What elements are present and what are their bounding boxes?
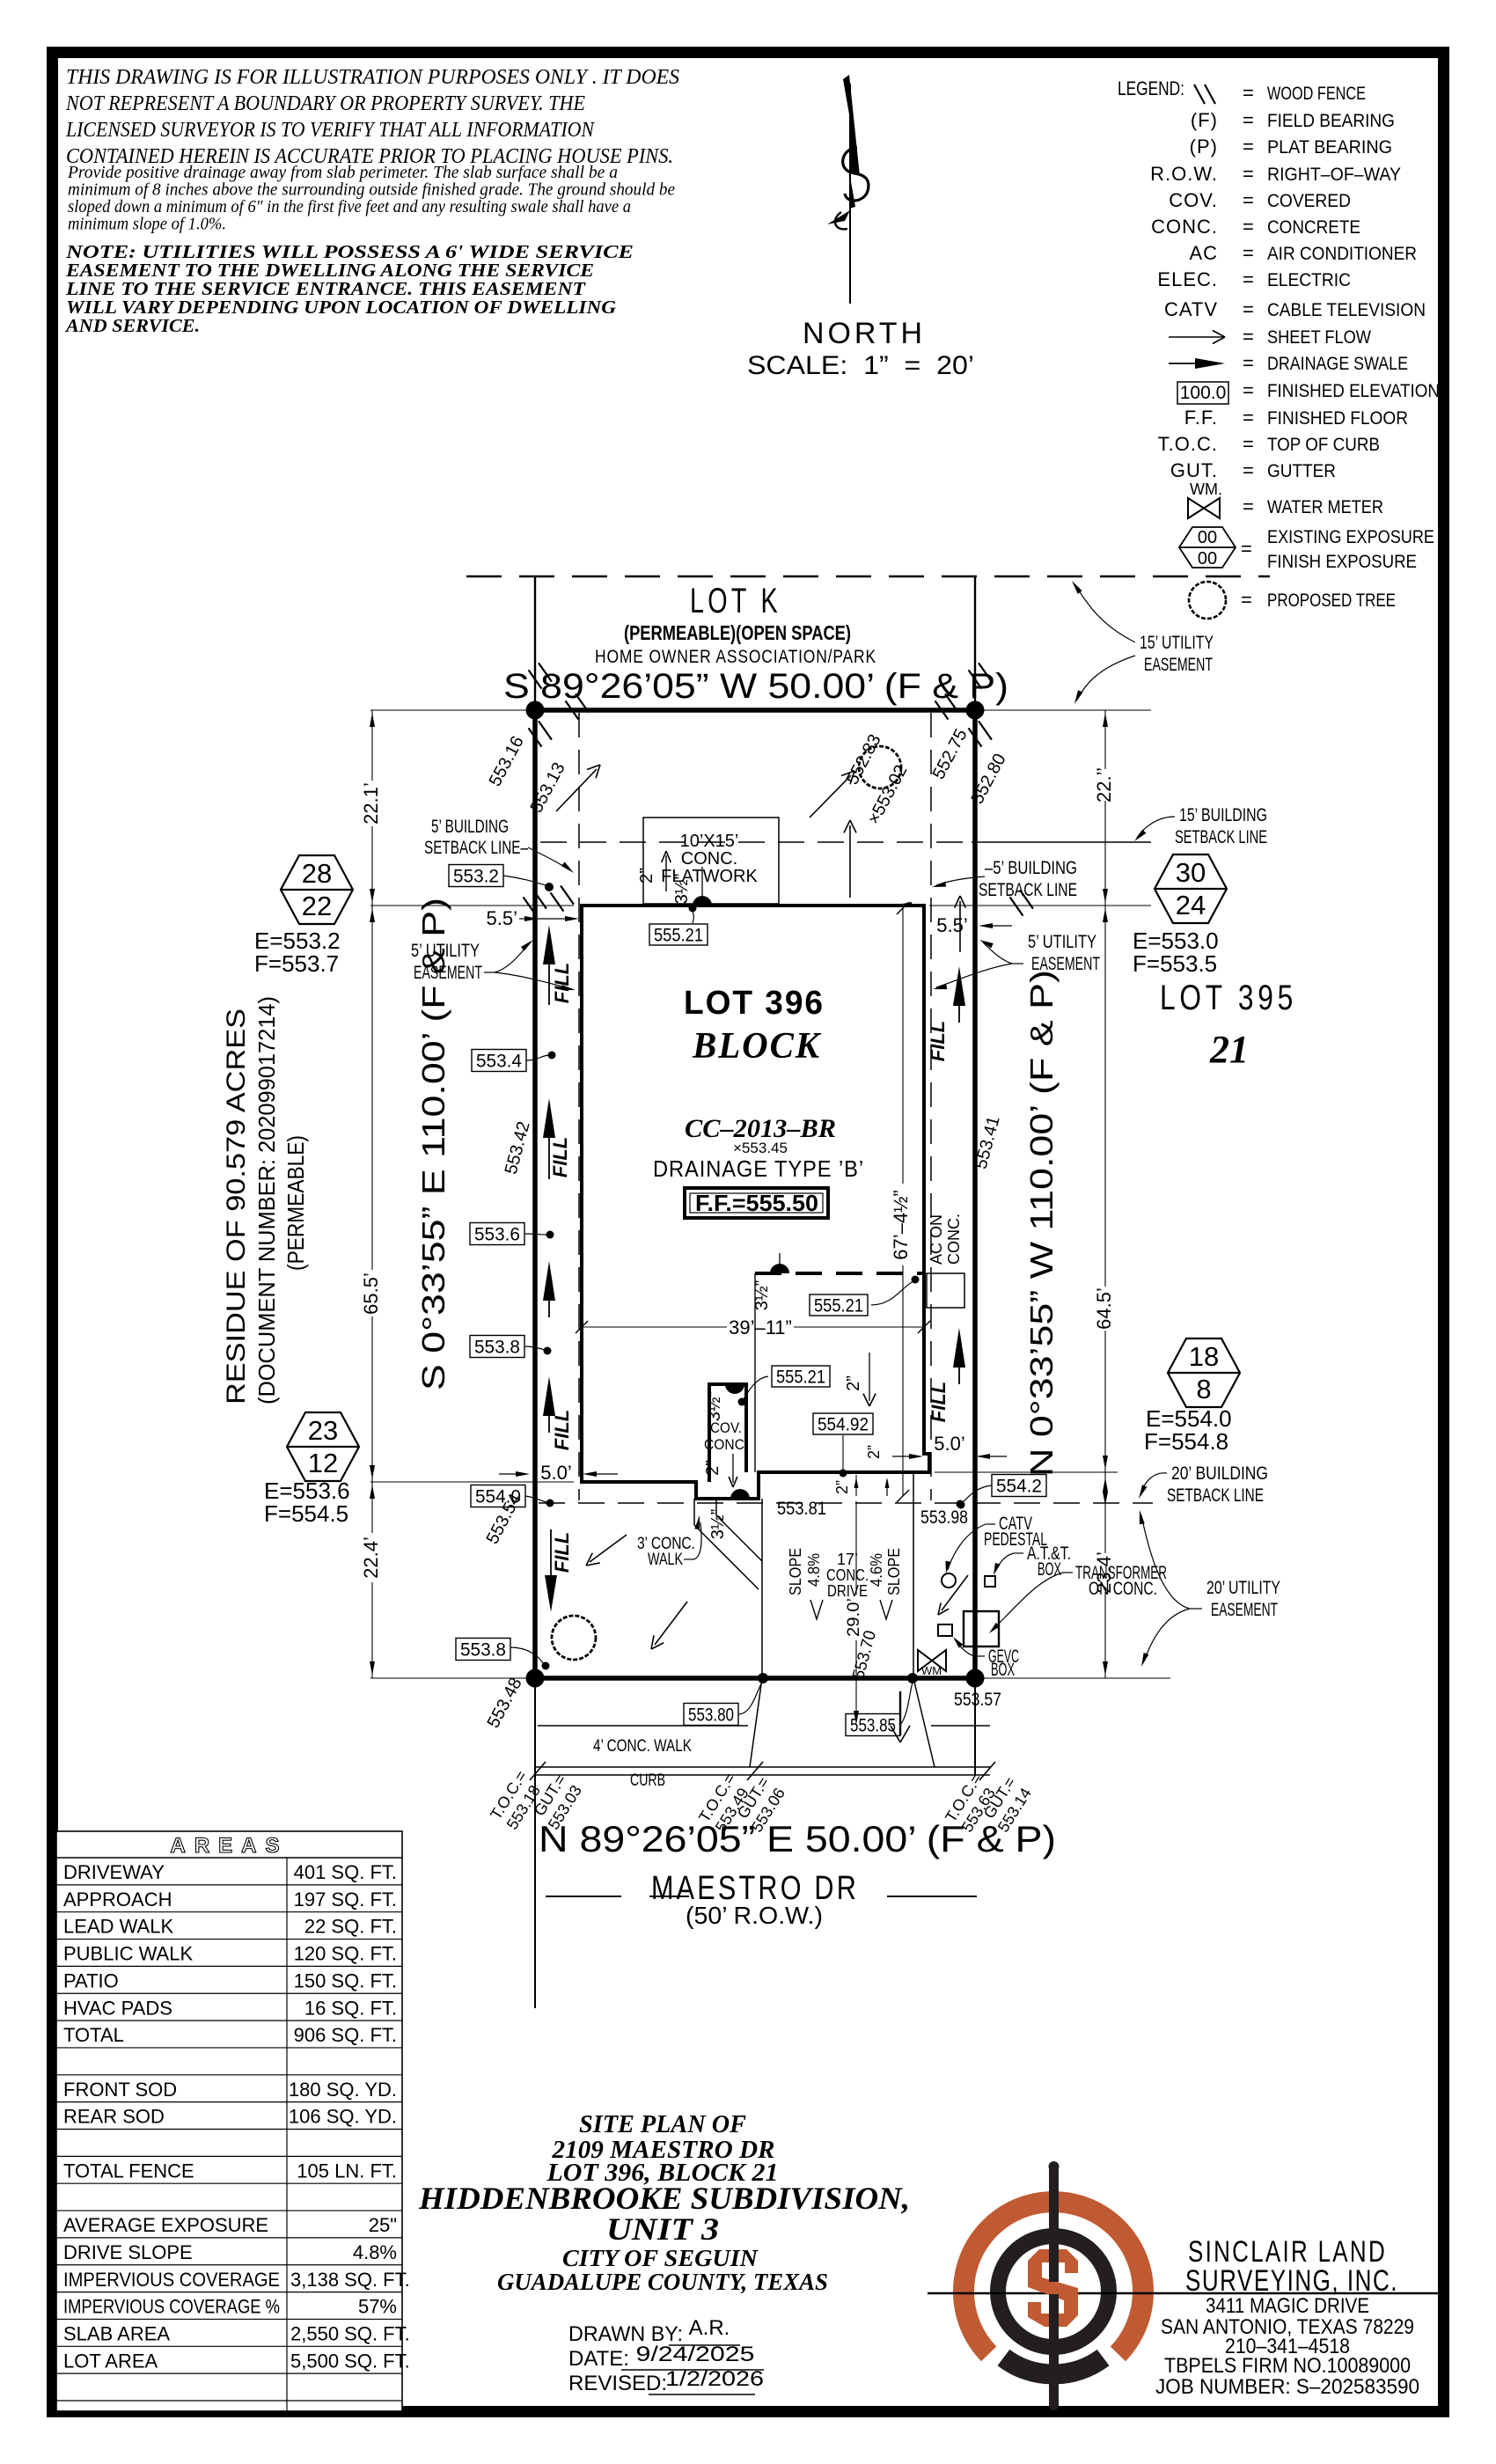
- svg-text:DRIVE: DRIVE: [827, 1582, 868, 1600]
- svg-text:=: =: [1243, 379, 1254, 401]
- svg-text:LOT AREA: LOT AREA: [63, 2350, 158, 2372]
- svg-text:GUT.: GUT.: [1170, 459, 1218, 481]
- svg-text:ELECTRIC: ELECTRIC: [1267, 270, 1351, 290]
- svg-text:F.F.=555.50: F.F.=555.50: [695, 1190, 818, 1216]
- svg-text:PUBLIC WALK: PUBLIC WALK: [63, 1943, 193, 1965]
- svg-text:120 SQ. FT.: 120 SQ. FT.: [294, 1943, 397, 1965]
- svg-text:CONC.: CONC.: [826, 1566, 869, 1584]
- svg-text:SLOPE: SLOPE: [885, 1548, 903, 1595]
- svg-text:TBPELS FIRM NO.10089000: TBPELS FIRM NO.10089000: [1164, 2354, 1411, 2378]
- svg-text:LOT 395: LOT 395: [1160, 979, 1297, 1017]
- svg-text:5.0’: 5.0’: [934, 1433, 964, 1455]
- svg-text:LICENSED SURVEYOR IS TO VERIFY: LICENSED SURVEYOR IS TO VERIFY THAT ALL …: [65, 119, 596, 142]
- svg-text:9/24/2025: 9/24/2025: [636, 2343, 755, 2366]
- svg-text:PATIO: PATIO: [63, 1969, 119, 1991]
- svg-text:=: =: [1243, 407, 1254, 429]
- svg-text:FIELD BEARING: FIELD BEARING: [1267, 111, 1395, 131]
- svg-text:EASEMENT: EASEMENT: [1031, 954, 1100, 974]
- svg-text:×553.02: ×553.02: [864, 762, 912, 828]
- svg-text:1/2/2026: 1/2/2026: [665, 2367, 764, 2391]
- svg-text:COV.: COV.: [1169, 189, 1218, 211]
- svg-text:–5’ BUILDING: –5’ BUILDING: [985, 858, 1077, 878]
- svg-text:=: =: [1243, 459, 1254, 481]
- svg-text:=: =: [1243, 189, 1254, 211]
- svg-text:A.R.: A.R.: [689, 2316, 730, 2340]
- svg-text:22 SQ. FT.: 22 SQ. FT.: [304, 1916, 397, 1938]
- svg-text:FINISHED ELEVATION: FINISHED ELEVATION: [1267, 381, 1440, 401]
- svg-text:REVISED:: REVISED:: [568, 2372, 667, 2395]
- svg-text:WOOD FENCE: WOOD FENCE: [1267, 84, 1366, 104]
- svg-text:2”: 2”: [637, 868, 656, 884]
- svg-text:CITY OF SEGUIN: CITY OF SEGUIN: [562, 2245, 759, 2271]
- svg-text:197 SQ. FT.: 197 SQ. FT.: [294, 1888, 397, 1910]
- svg-text:65.5’: 65.5’: [360, 1272, 382, 1315]
- svg-text:AND SERVICE.: AND SERVICE.: [64, 315, 200, 336]
- svg-text:ON CONC.: ON CONC.: [1089, 1579, 1157, 1599]
- svg-text:28: 28: [302, 858, 332, 889]
- svg-text:553.4: 553.4: [476, 1051, 522, 1071]
- svg-text:8: 8: [1196, 1374, 1211, 1404]
- svg-text:EASEMENT: EASEMENT: [414, 963, 482, 983]
- svg-text:BOX: BOX: [1038, 1559, 1061, 1580]
- svg-text:FILL: FILL: [551, 963, 573, 1003]
- svg-text:AC: AC: [1189, 242, 1218, 264]
- svg-text:ELEC.: ELEC.: [1157, 268, 1218, 290]
- svg-text:554.92: 554.92: [818, 1414, 869, 1434]
- svg-text:553.8: 553.8: [460, 1639, 506, 1660]
- svg-text:(50’ R.O.W.): (50’ R.O.W.): [686, 1902, 823, 1929]
- svg-text:RIGHT–OF–WAY: RIGHT–OF–WAY: [1267, 165, 1401, 185]
- svg-text:RESIDUE OF 90.579 ACRES: RESIDUE OF 90.579 ACRES: [222, 1008, 251, 1404]
- svg-text:5’ UTILITY: 5’ UTILITY: [1028, 932, 1096, 952]
- svg-text:22.’’: 22.’’: [1093, 767, 1115, 803]
- svg-text:CATV: CATV: [1164, 298, 1218, 320]
- svg-text:SURVEYING, INC.: SURVEYING, INC.: [1185, 2264, 1398, 2298]
- svg-text:TOP OF CURB: TOP OF CURB: [1267, 435, 1380, 455]
- svg-text:FILL: FILL: [927, 1021, 949, 1061]
- svg-text:553.42: 553.42: [502, 1119, 534, 1177]
- svg-text:WATER METER: WATER METER: [1267, 497, 1383, 517]
- svg-text:CONC.: CONC.: [1151, 216, 1218, 238]
- svg-text:180 SQ. YD.: 180 SQ. YD.: [289, 2079, 397, 2101]
- svg-text:3½”: 3½”: [705, 1391, 724, 1421]
- svg-text:401 SQ. FT.: 401 SQ. FT.: [294, 1861, 397, 1883]
- svg-text:DRAINAGE SWALE: DRAINAGE SWALE: [1267, 354, 1408, 374]
- svg-text:=: =: [1241, 538, 1252, 560]
- svg-text:29.0’: 29.0’: [845, 1598, 863, 1637]
- svg-text:553.98: 553.98: [920, 1507, 968, 1528]
- svg-text:APPROACH: APPROACH: [63, 1888, 172, 1910]
- svg-text:EASEMENT: EASEMENT: [1144, 655, 1213, 675]
- svg-text:F.F.: F.F.: [1184, 407, 1218, 429]
- svg-text:5,500 SQ. FT.: 5,500 SQ. FT.: [290, 2350, 410, 2372]
- svg-text:LEAD WALK: LEAD WALK: [63, 1916, 173, 1938]
- svg-text:N 0°33’55” W 110.00’ (F & P): N 0°33’55” W 110.00’ (F & P): [1023, 970, 1060, 1477]
- svg-text:NORTH: NORTH: [803, 317, 926, 350]
- svg-text:JOB NUMBER: S–202583590: JOB NUMBER: S–202583590: [1155, 2375, 1419, 2399]
- svg-text:3½”: 3½”: [672, 874, 692, 904]
- svg-text:17’: 17’: [837, 1551, 858, 1568]
- svg-text:HIDDENBROOKE SUBDIVISION,: HIDDENBROOKE SUBDIVISION,: [418, 2181, 910, 2216]
- svg-text:UNIT 3: UNIT 3: [606, 2211, 719, 2247]
- svg-text:AVERAGE EXPOSURE: AVERAGE EXPOSURE: [63, 2214, 268, 2236]
- svg-text:GUTTER: GUTTER: [1267, 461, 1336, 481]
- svg-text:F=554.8: F=554.8: [1144, 1428, 1228, 1455]
- svg-text:SLAB AREA: SLAB AREA: [63, 2322, 170, 2344]
- svg-text:20’ BUILDING: 20’ BUILDING: [1171, 1463, 1268, 1484]
- svg-text:CURB: CURB: [630, 1771, 665, 1790]
- svg-text:TOTAL: TOTAL: [63, 2024, 124, 2046]
- svg-text:4.8%: 4.8%: [353, 2241, 397, 2263]
- svg-text:SETBACK LINE: SETBACK LINE: [1167, 1485, 1264, 1506]
- svg-text:SHEET FLOW: SHEET FLOW: [1267, 327, 1371, 348]
- svg-text:FILL: FILL: [551, 1410, 573, 1450]
- svg-text:N 89°26’05” E 50.00’ (F & P): N 89°26’05” E 50.00’ (F & P): [539, 1818, 1056, 1859]
- svg-text:906 SQ. FT.: 906 SQ. FT.: [294, 2024, 397, 2046]
- svg-text:EASEMENT: EASEMENT: [1211, 1600, 1278, 1620]
- svg-text:21: 21: [1209, 1028, 1249, 1071]
- svg-text:553.8: 553.8: [474, 1337, 520, 1357]
- svg-text:IMPERVIOUS COVERAGE: IMPERVIOUS COVERAGE: [63, 2269, 280, 2291]
- svg-text:HVAC PADS: HVAC PADS: [63, 1997, 172, 2019]
- svg-text:553.6: 553.6: [474, 1224, 520, 1244]
- svg-text:FINISHED FLOOR: FINISHED FLOOR: [1267, 408, 1408, 429]
- svg-text:64.5’: 64.5’: [1093, 1287, 1115, 1330]
- svg-text:106 SQ. YD.: 106 SQ. YD.: [289, 2106, 397, 2128]
- svg-text:555.21: 555.21: [814, 1295, 863, 1316]
- svg-text:5.5’: 5.5’: [936, 914, 967, 936]
- svg-text:553.57: 553.57: [954, 1690, 1001, 1710]
- svg-text:552.75: 552.75: [929, 726, 972, 782]
- svg-text:554.2: 554.2: [996, 1476, 1042, 1496]
- svg-text:39’–11”: 39’–11”: [729, 1316, 792, 1338]
- svg-text:PROPOSED TREE: PROPOSED TREE: [1267, 590, 1396, 611]
- svg-text:30: 30: [1176, 857, 1206, 888]
- svg-text:100.0: 100.0: [1180, 383, 1227, 403]
- svg-text:(DOCUMENT NUMBER: 202099017214: (DOCUMENT NUMBER: 202099017214): [253, 996, 280, 1404]
- svg-text:2”: 2”: [865, 1445, 883, 1459]
- svg-text:GUADALUPE COUNTY, TEXAS: GUADALUPE COUNTY, TEXAS: [497, 2269, 828, 2295]
- svg-text:DATE:: DATE:: [568, 2347, 629, 2371]
- svg-text:=: =: [1243, 136, 1254, 158]
- svg-text:FRONT SOD: FRONT SOD: [63, 2079, 177, 2101]
- svg-text:FINISH EXPOSURE: FINISH EXPOSURE: [1267, 552, 1417, 572]
- svg-text:105 LN. FT.: 105 LN. FT.: [297, 2160, 397, 2182]
- svg-text:(PERMEABLE)(OPEN SPACE): (PERMEABLE)(OPEN SPACE): [624, 621, 851, 644]
- svg-text:SETBACK LINE: SETBACK LINE: [1175, 827, 1267, 847]
- svg-text:AC ON: AC ON: [928, 1214, 945, 1265]
- svg-text:553.80: 553.80: [688, 1705, 734, 1725]
- svg-text:3½”: 3½”: [752, 1280, 772, 1310]
- svg-text:F=554.5: F=554.5: [264, 1500, 348, 1527]
- svg-text:THIS DRAWING IS FOR ILLUSTRATI: THIS DRAWING IS FOR ILLUSTRATION PURPOSE…: [66, 66, 679, 89]
- svg-text:22: 22: [302, 891, 332, 921]
- svg-text:=: =: [1243, 298, 1254, 320]
- svg-text:WM: WM: [921, 1664, 942, 1677]
- svg-text:=: =: [1243, 352, 1254, 374]
- svg-text:=: =: [1243, 495, 1254, 517]
- svg-text:COV.: COV.: [710, 1419, 742, 1436]
- svg-text:3411 MAGIC DRIVE: 3411 MAGIC DRIVE: [1206, 2294, 1369, 2318]
- svg-text:22.1’: 22.1’: [360, 782, 382, 825]
- svg-text:CONC.: CONC.: [945, 1214, 963, 1265]
- svg-text:12: 12: [308, 1448, 338, 1478]
- svg-text:553.16: 553.16: [486, 733, 528, 789]
- svg-text:=: =: [1243, 163, 1254, 185]
- svg-text:(PERMEABLE): (PERMEABLE): [282, 1135, 309, 1271]
- svg-text:WM.: WM.: [1190, 480, 1222, 498]
- svg-text:CONC: CONC: [704, 1436, 744, 1453]
- svg-text:4.8%: 4.8%: [805, 1553, 823, 1587]
- svg-text:LEGEND:: LEGEND:: [1118, 77, 1184, 99]
- svg-text:16 SQ. FT.: 16 SQ. FT.: [304, 1997, 397, 2019]
- svg-text:FILL: FILL: [551, 1532, 573, 1573]
- svg-text:AIR CONDITIONER: AIR CONDITIONER: [1267, 244, 1417, 264]
- svg-text:LOT K: LOT K: [690, 582, 781, 620]
- svg-text:5’ UTILITY: 5’ UTILITY: [411, 941, 480, 961]
- svg-text:=: =: [1241, 589, 1252, 611]
- svg-text:×553.45: ×553.45: [733, 1140, 788, 1156]
- svg-text:CONC.: CONC.: [681, 849, 737, 869]
- svg-text:(P): (P): [1190, 136, 1218, 158]
- svg-text:15’ BUILDING: 15’ BUILDING: [1179, 805, 1267, 825]
- svg-text:EXISTING EXPOSURE: EXISTING EXPOSURE: [1267, 527, 1434, 547]
- svg-text:57%: 57%: [358, 2296, 397, 2318]
- svg-text:SETBACK LINE–: SETBACK LINE–: [424, 838, 528, 858]
- svg-text:2,550 SQ. FT.: 2,550 SQ. FT.: [290, 2322, 410, 2344]
- svg-text:555.21: 555.21: [776, 1367, 825, 1387]
- svg-text:22.4’: 22.4’: [360, 1536, 382, 1579]
- svg-text:BLOCK: BLOCK: [692, 1026, 822, 1067]
- svg-text:23: 23: [308, 1415, 338, 1446]
- svg-text:553.81: 553.81: [777, 1499, 826, 1519]
- svg-text:553.2: 553.2: [453, 866, 499, 886]
- svg-text:4’ CONC. WALK: 4’ CONC. WALK: [593, 1737, 692, 1756]
- svg-text:REAR SOD: REAR SOD: [63, 2106, 165, 2128]
- svg-text:DRAINAGE TYPE ’B’: DRAINAGE TYPE ’B’: [653, 1155, 864, 1182]
- svg-text:HOME OWNER ASSOCIATION/PARK: HOME OWNER ASSOCIATION/PARK: [595, 647, 876, 667]
- svg-text:R.O.W.: R.O.W.: [1150, 163, 1218, 185]
- svg-text:553.48: 553.48: [484, 1675, 526, 1731]
- svg-text:10’X15’: 10’X15’: [680, 832, 739, 851]
- svg-text:=: =: [1243, 326, 1254, 348]
- svg-text:COVERED: COVERED: [1267, 191, 1351, 211]
- svg-text:SCALE: 1” = 20’: SCALE: 1” = 20’: [747, 351, 974, 380]
- svg-text:5’ BUILDING: 5’ BUILDING: [431, 817, 509, 837]
- svg-text:=: =: [1243, 109, 1254, 131]
- svg-text:=: =: [1243, 82, 1254, 104]
- svg-text:2”: 2”: [844, 1375, 863, 1391]
- svg-text:PLAT BEARING: PLAT BEARING: [1267, 137, 1392, 158]
- svg-text:555.21: 555.21: [654, 925, 703, 945]
- svg-text:5.5’: 5.5’: [487, 907, 517, 929]
- svg-text:NOT REPRESENT A BOUNDARY OR PR: NOT REPRESENT A BOUNDARY OR PROPERTY SUR…: [65, 92, 585, 115]
- svg-text:00: 00: [1198, 549, 1217, 568]
- svg-text:3,138 SQ. FT.: 3,138 SQ. FT.: [290, 2269, 410, 2291]
- svg-text:SITE PLAN OF: SITE PLAN OF: [579, 2111, 746, 2138]
- svg-text:minimum slope of 1.0%.: minimum slope of 1.0%.: [68, 215, 226, 234]
- svg-text:F=553.7: F=553.7: [254, 950, 339, 977]
- svg-text:(F): (F): [1191, 109, 1218, 131]
- svg-text:WALK: WALK: [648, 1551, 683, 1569]
- svg-text:20’ UTILITY: 20’ UTILITY: [1206, 1578, 1280, 1598]
- svg-text:BOX: BOX: [991, 1660, 1015, 1680]
- svg-text:00: 00: [1198, 528, 1217, 547]
- svg-text:=: =: [1243, 242, 1254, 264]
- svg-text:CABLE TELEVISION: CABLE TELEVISION: [1267, 300, 1426, 320]
- svg-text:TOTAL FENCE: TOTAL FENCE: [63, 2160, 194, 2182]
- svg-text:5.0’: 5.0’: [540, 1462, 571, 1484]
- svg-text:T.O.C.: T.O.C.: [1158, 433, 1218, 455]
- svg-text:CONCRETE: CONCRETE: [1267, 217, 1360, 238]
- svg-text:=: =: [1243, 433, 1254, 455]
- svg-text:DRIVEWAY: DRIVEWAY: [63, 1861, 165, 1883]
- svg-text:IMPERVIOUS COVERAGE %: IMPERVIOUS COVERAGE %: [63, 2296, 280, 2318]
- svg-text:=: =: [1243, 216, 1254, 238]
- svg-text:25": 25": [369, 2214, 397, 2236]
- svg-text:67’–4½”: 67’–4½”: [890, 1190, 912, 1260]
- svg-text:SETBACK LINE: SETBACK LINE: [979, 880, 1077, 900]
- svg-text:SLOPE: SLOPE: [787, 1548, 804, 1595]
- svg-text:DRIVE SLOPE: DRIVE SLOPE: [63, 2241, 193, 2263]
- svg-text:2”: 2”: [703, 1460, 722, 1476]
- svg-text:LOT 396: LOT 396: [684, 985, 825, 1022]
- svg-text:AREAS: AREAS: [170, 1834, 288, 1858]
- svg-text:150 SQ. FT.: 150 SQ. FT.: [294, 1969, 397, 1991]
- svg-text:=: =: [1243, 268, 1254, 290]
- svg-text:18: 18: [1189, 1341, 1219, 1372]
- svg-text:F=553.5: F=553.5: [1133, 950, 1217, 977]
- svg-text:15’ UTILITY: 15’ UTILITY: [1140, 633, 1214, 653]
- svg-text:4.6%: 4.6%: [868, 1553, 885, 1587]
- svg-text:2”: 2”: [833, 1480, 851, 1494]
- svg-text:FILL: FILL: [928, 1382, 950, 1422]
- svg-text:24: 24: [1176, 890, 1206, 920]
- svg-text:FILL: FILL: [549, 1137, 571, 1177]
